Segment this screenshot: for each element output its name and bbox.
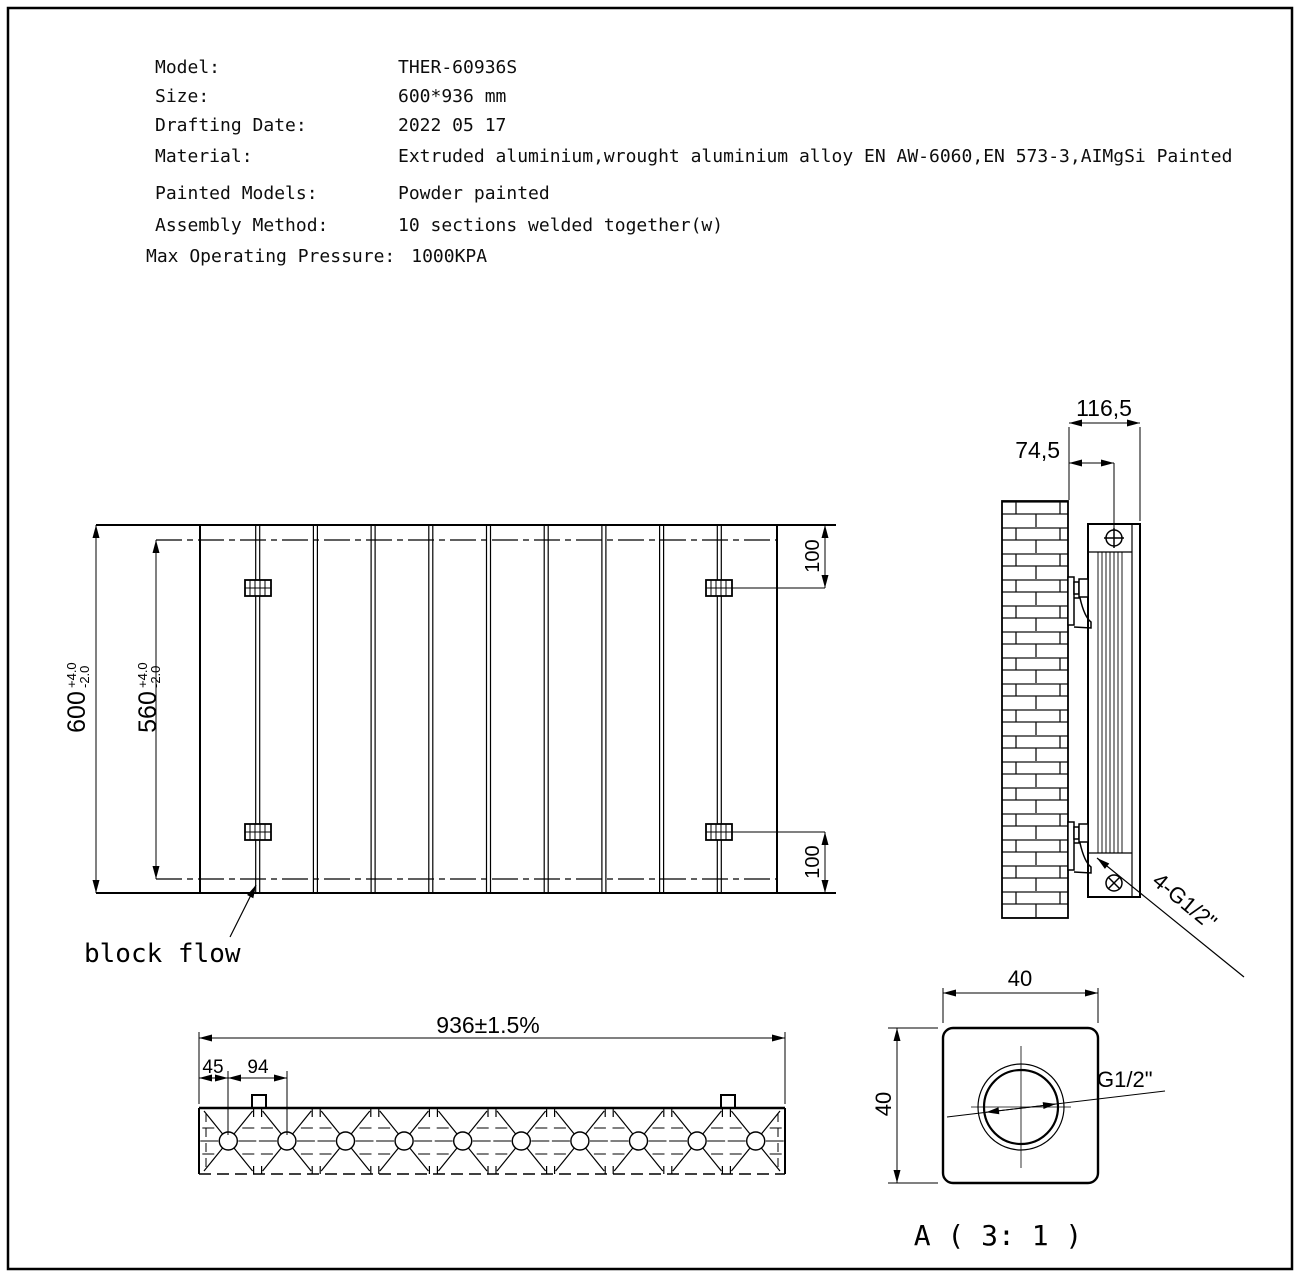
dim-text-40-left: 40 <box>871 1092 896 1116</box>
cad-drawing: 600 +4.0 -2.0 560 +4.0 -2.0 100 100 bloc… <box>0 0 1300 1277</box>
dim-tol-minus: -2.0 <box>77 666 92 688</box>
drawing-sheet: Model:THER-60936S Size:600*936 mm Drafti… <box>0 0 1300 1277</box>
dim-text-936: 936±1.5% <box>436 1012 539 1038</box>
dim-text-100-top: 100 <box>802 539 824 572</box>
dim-text-40-top: 40 <box>1008 966 1032 991</box>
dim-text-600: 600 <box>63 691 91 733</box>
section-join-lines <box>256 525 722 893</box>
wall-section <box>1002 501 1068 918</box>
section-block <box>943 1028 1098 1183</box>
ports-label: 4-G1/2" <box>1148 868 1222 935</box>
dim-text-74-5: 74,5 <box>1015 437 1060 463</box>
tab-left <box>252 1095 266 1108</box>
dim-text-560: 560 <box>134 691 162 733</box>
section-cells <box>200 1108 783 1174</box>
side-view <box>1002 423 1244 977</box>
block-flow-label: block flow <box>84 939 241 969</box>
dim-text-94: 94 <box>247 1057 269 1078</box>
fin-lines <box>1098 552 1122 853</box>
thread-label: G1/2" <box>1097 1067 1153 1092</box>
detail-caption: A ( 3: 1 ) <box>914 1219 1083 1252</box>
tab-right <box>721 1095 735 1108</box>
mounting-brackets <box>245 580 732 840</box>
front-view <box>96 525 836 937</box>
bottom-section-view <box>199 1032 785 1174</box>
dim-tol-minus: -2.0 <box>148 666 163 688</box>
dim-height-inner: 560 +4.0 -2.0 <box>134 662 163 733</box>
dim-height-outer: 600 +4.0 -2.0 <box>63 662 92 733</box>
dim-text-45: 45 <box>202 1057 223 1078</box>
dim-text-116-5: 116,5 <box>1076 395 1132 421</box>
dim-text-100-bottom: 100 <box>802 845 824 878</box>
